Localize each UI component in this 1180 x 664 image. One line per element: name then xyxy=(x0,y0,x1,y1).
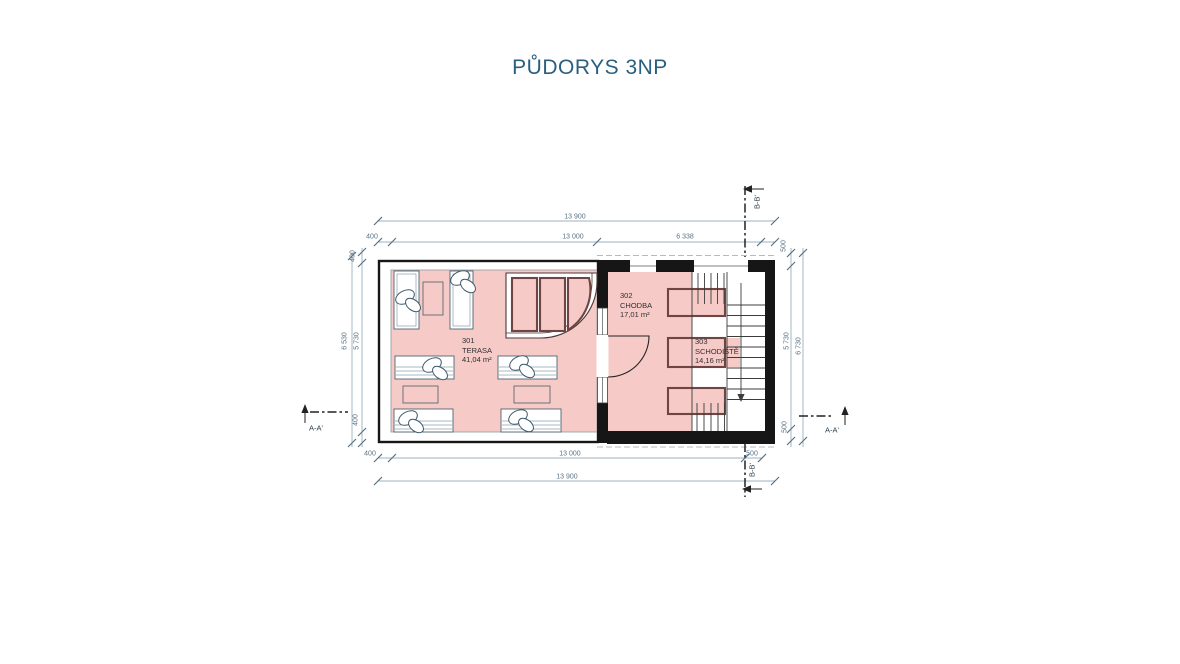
dim-left-400-top: 400 xyxy=(350,250,357,262)
section-label-bb-top: B-B' xyxy=(753,195,761,209)
dim-top-13000: 13 000 xyxy=(562,234,583,241)
dim-right-500-bottom: 500 xyxy=(782,421,789,433)
table xyxy=(514,386,550,403)
room-number: 301 xyxy=(462,336,492,346)
dim-left-outer: 6 530 xyxy=(342,332,349,350)
dim-top-overall: 13 900 xyxy=(564,214,585,221)
glazing-panel xyxy=(512,278,537,331)
section-label-bb-bottom: B-B' xyxy=(748,463,756,477)
table xyxy=(403,386,438,403)
room-label-303: 303 SCHODIŠTĚ 14,16 m² xyxy=(695,337,739,366)
room-area: 41,04 m² xyxy=(462,355,492,365)
room-name: CHODBA xyxy=(620,301,652,311)
room-label-302: 302 CHODBA 17,01 m² xyxy=(620,291,652,320)
table xyxy=(423,282,443,315)
dim-bottom-500: 500 xyxy=(746,451,758,458)
room-area: 14,16 m² xyxy=(695,356,739,366)
section-label-aa-right: A-A' xyxy=(825,426,839,434)
room-label-301: 301 TERASA 41,04 m² xyxy=(462,336,492,365)
dim-right-5730: 5 730 xyxy=(784,332,791,350)
dim-bottom-400: 400 xyxy=(364,451,376,458)
dim-top-400: 400 xyxy=(366,234,378,241)
dim-right-500-top: 500 xyxy=(781,240,788,252)
dim-left-5730: 5 730 xyxy=(354,332,361,350)
glazing-panel xyxy=(540,278,565,331)
dim-bottom-13000: 13 000 xyxy=(559,451,580,458)
floor-plan-drawing xyxy=(0,0,1180,664)
door-opening xyxy=(597,335,609,377)
section-arrow-aa-left xyxy=(301,404,308,413)
section-arrow-bb-bottom xyxy=(742,485,751,493)
room-number: 303 xyxy=(695,337,739,347)
room-number: 302 xyxy=(620,291,652,301)
dim-bottom-overall: 13 900 xyxy=(556,474,577,481)
section-label-aa-left: A-A' xyxy=(309,424,323,432)
dim-top-6338: 6 338 xyxy=(676,234,694,241)
dim-left-400-bottom: 400 xyxy=(353,414,360,426)
section-arrow-aa-right xyxy=(841,406,848,415)
room-name: TERASA xyxy=(462,346,492,356)
room-area: 17,01 m² xyxy=(620,310,652,320)
room-name: SCHODIŠTĚ xyxy=(695,347,739,357)
dim-right-outer: 6 730 xyxy=(796,337,803,355)
floorplan-canvas: PŮDORYS 3NP xyxy=(0,0,1180,664)
